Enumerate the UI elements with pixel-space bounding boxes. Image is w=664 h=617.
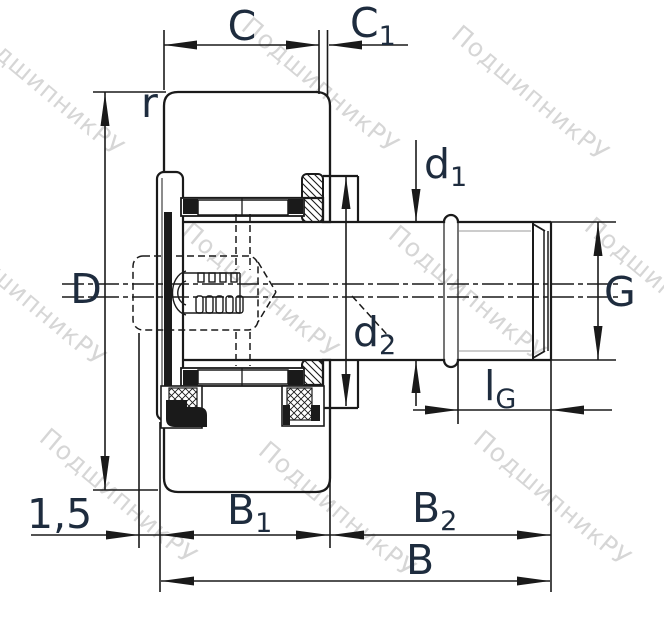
thread-tooth [198, 273, 204, 282]
dim-label-c1: C1 [350, 0, 396, 52]
watermark-text: ПодшипникРУ [383, 219, 552, 367]
dim-label-chamfer: 1,5 [27, 490, 92, 538]
arrowhead [101, 93, 110, 126]
thread-chamfer-top [533, 224, 545, 231]
seal-block-top-left [183, 199, 198, 214]
watermark-text: ПодшипникРУ [446, 19, 615, 167]
needle-row-top [198, 200, 288, 215]
arrowhead [161, 577, 194, 586]
arrowhead [106, 531, 139, 540]
thread-coil [206, 296, 213, 313]
dim-label-lg: lG [484, 362, 516, 415]
dimension-d2: d2 [342, 176, 397, 406]
arrowhead [425, 406, 458, 415]
stud-collar [323, 176, 358, 408]
seal-block-bottom-right [288, 370, 303, 385]
shank-bottom-edge [183, 360, 551, 367]
dim-label-d1: d1 [424, 140, 467, 193]
dim-label-g: G [604, 268, 636, 316]
seal-retainer-right-b [311, 405, 320, 421]
watermark-text: ПодшипникРУ [0, 14, 130, 162]
seal-block-bottom-left [183, 370, 198, 385]
dim-label-b2: B2 [412, 484, 457, 537]
thread-coil [216, 296, 223, 313]
thread-coil [196, 296, 203, 313]
flange-washer-top [302, 174, 323, 222]
end-plate [157, 172, 183, 420]
arrowhead [342, 177, 351, 209]
arrowhead [412, 361, 421, 393]
arrowhead [517, 577, 550, 586]
arrowhead [412, 189, 421, 221]
thread-tooth [209, 273, 215, 282]
bearing-drawing: ПодшипникРУ ПодшипникРУ ПодшипникРУ Подш… [0, 0, 664, 617]
arrowhead [164, 41, 197, 50]
seal-pockets [161, 386, 324, 428]
arrowhead [551, 406, 584, 415]
dim-label-b1: B1 [227, 486, 272, 539]
arrowhead [286, 41, 319, 50]
dim-label-b: B [406, 536, 434, 584]
centerlines [62, 284, 618, 297]
seal-retainer-right-a [283, 405, 290, 425]
needle-row-bottom [198, 370, 288, 384]
arrowhead [342, 374, 351, 406]
rubber-seal-right [287, 388, 312, 420]
arrowhead [517, 531, 550, 540]
watermark-text: ПодшипникРУ [176, 216, 345, 364]
seal-bar [164, 212, 172, 408]
watermark-text: ПодшипникРУ [468, 424, 637, 572]
seal-block-top-right [288, 199, 303, 214]
dim-label-r: r [141, 79, 158, 127]
technical-drawing-canvas: ПодшипникРУ ПодшипникРУ ПодшипникРУ Подш… [0, 0, 664, 617]
thread-coil [226, 296, 233, 313]
arrowhead [296, 531, 329, 540]
dim-label-d: D [70, 265, 102, 313]
dim-label-d2: d2 [353, 308, 396, 361]
watermark-text: ПодшипникРУ [253, 435, 422, 583]
dim-label-c: C [228, 2, 257, 50]
arrowhead [594, 326, 603, 359]
